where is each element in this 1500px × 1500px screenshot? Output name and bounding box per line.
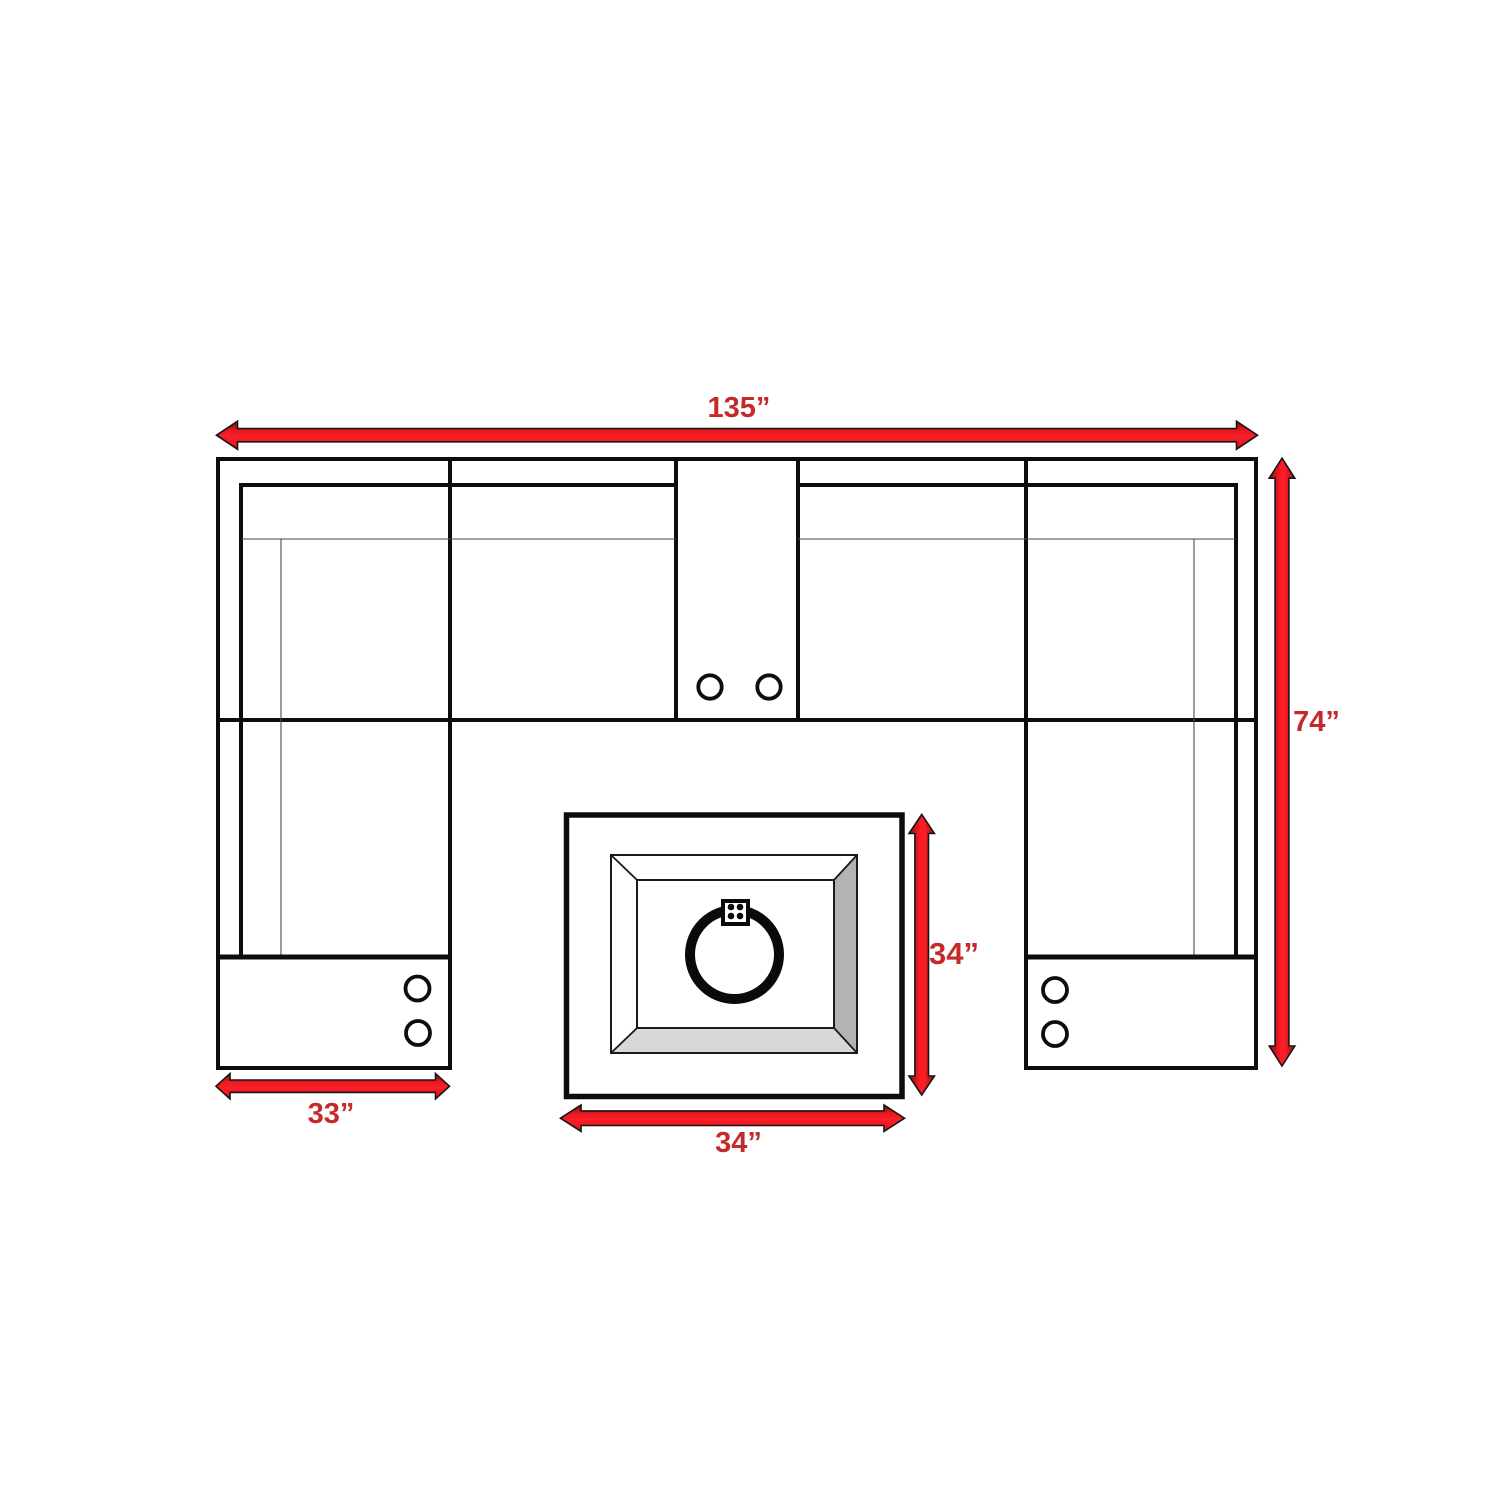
svg-text:135”: 135” [708,392,771,424]
svg-text:34”: 34” [929,936,979,971]
svg-text:74”: 74” [1293,706,1340,738]
svg-text:33”: 33” [308,1098,355,1130]
svg-text:34”: 34” [715,1127,762,1159]
